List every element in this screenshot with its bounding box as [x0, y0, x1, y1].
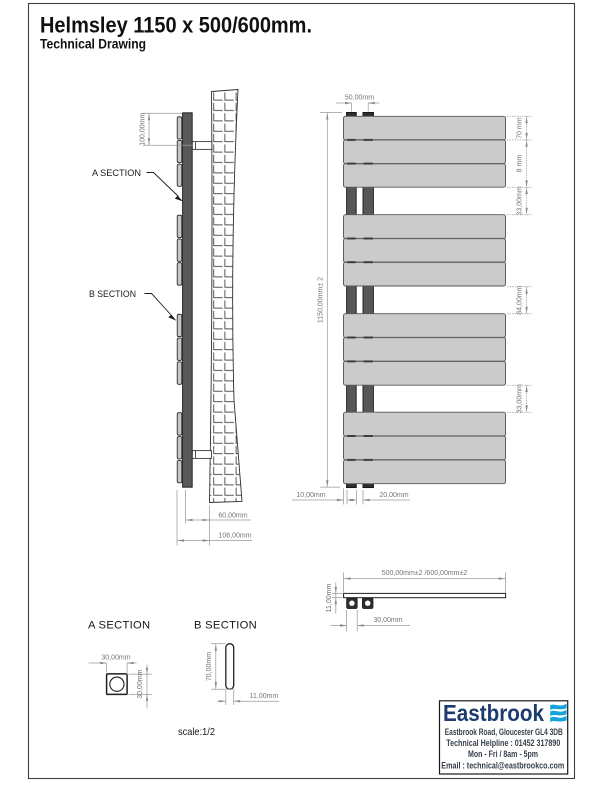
- svg-text:30,00mm: 30,00mm: [373, 617, 402, 624]
- svg-text:100,00mm: 100,00mm: [140, 112, 147, 145]
- svg-text:500,00mm±2 /600,00mm±2: 500,00mm±2 /600,00mm±2: [382, 570, 468, 577]
- svg-text:20,00mm: 20,00mm: [379, 492, 408, 499]
- svg-text:30,00mm: 30,00mm: [101, 655, 130, 662]
- svg-text:84,00mm: 84,00mm: [516, 285, 523, 314]
- svg-text:33,00mm: 33,00mm: [516, 384, 523, 413]
- svg-text:106,00mm: 106,00mm: [218, 533, 251, 540]
- svg-text:30,00mm: 30,00mm: [137, 669, 144, 698]
- svg-text:11,00mm: 11,00mm: [250, 693, 279, 700]
- svg-text:B SECTION: B SECTION: [89, 289, 136, 300]
- svg-text:10,00mm: 10,00mm: [296, 492, 325, 499]
- svg-text:B SECTION: B SECTION: [194, 620, 257, 632]
- svg-text:50,00mm: 50,00mm: [345, 95, 374, 102]
- svg-text:A SECTION: A SECTION: [92, 168, 141, 179]
- svg-text:11,00mm: 11,00mm: [326, 584, 333, 613]
- svg-text:1150,00mm± 2: 1150,00mm± 2: [317, 277, 324, 323]
- svg-text:Helmsley 1150 x 500/600mm.: Helmsley 1150 x 500/600mm.: [40, 13, 312, 38]
- svg-text:Technical Drawing: Technical Drawing: [40, 37, 146, 52]
- svg-text:Eastbrook: Eastbrook: [443, 700, 545, 726]
- svg-text:Email : technical@eastbrookco.: Email : technical@eastbrookco.com: [441, 761, 564, 772]
- svg-text:70,00mm: 70,00mm: [206, 652, 213, 681]
- svg-text:60,00mm: 60,00mm: [218, 513, 247, 520]
- svg-text:8 mm: 8 mm: [516, 155, 523, 173]
- svg-text:Technical Helpline : 01452 317: Technical Helpline : 01452 317890: [446, 738, 560, 749]
- svg-text:Mon - Fri / 8am - 5pm: Mon - Fri / 8am - 5pm: [468, 749, 538, 760]
- svg-text:Eastbrook Road, Gloucester GL4: Eastbrook Road, Gloucester GL4 3DB: [445, 727, 563, 738]
- svg-text:A SECTION: A SECTION: [88, 620, 150, 632]
- svg-text:70 mm: 70 mm: [516, 117, 523, 139]
- svg-text:33,00mm: 33,00mm: [516, 186, 523, 215]
- svg-text:scale:1/2: scale:1/2: [178, 726, 215, 738]
